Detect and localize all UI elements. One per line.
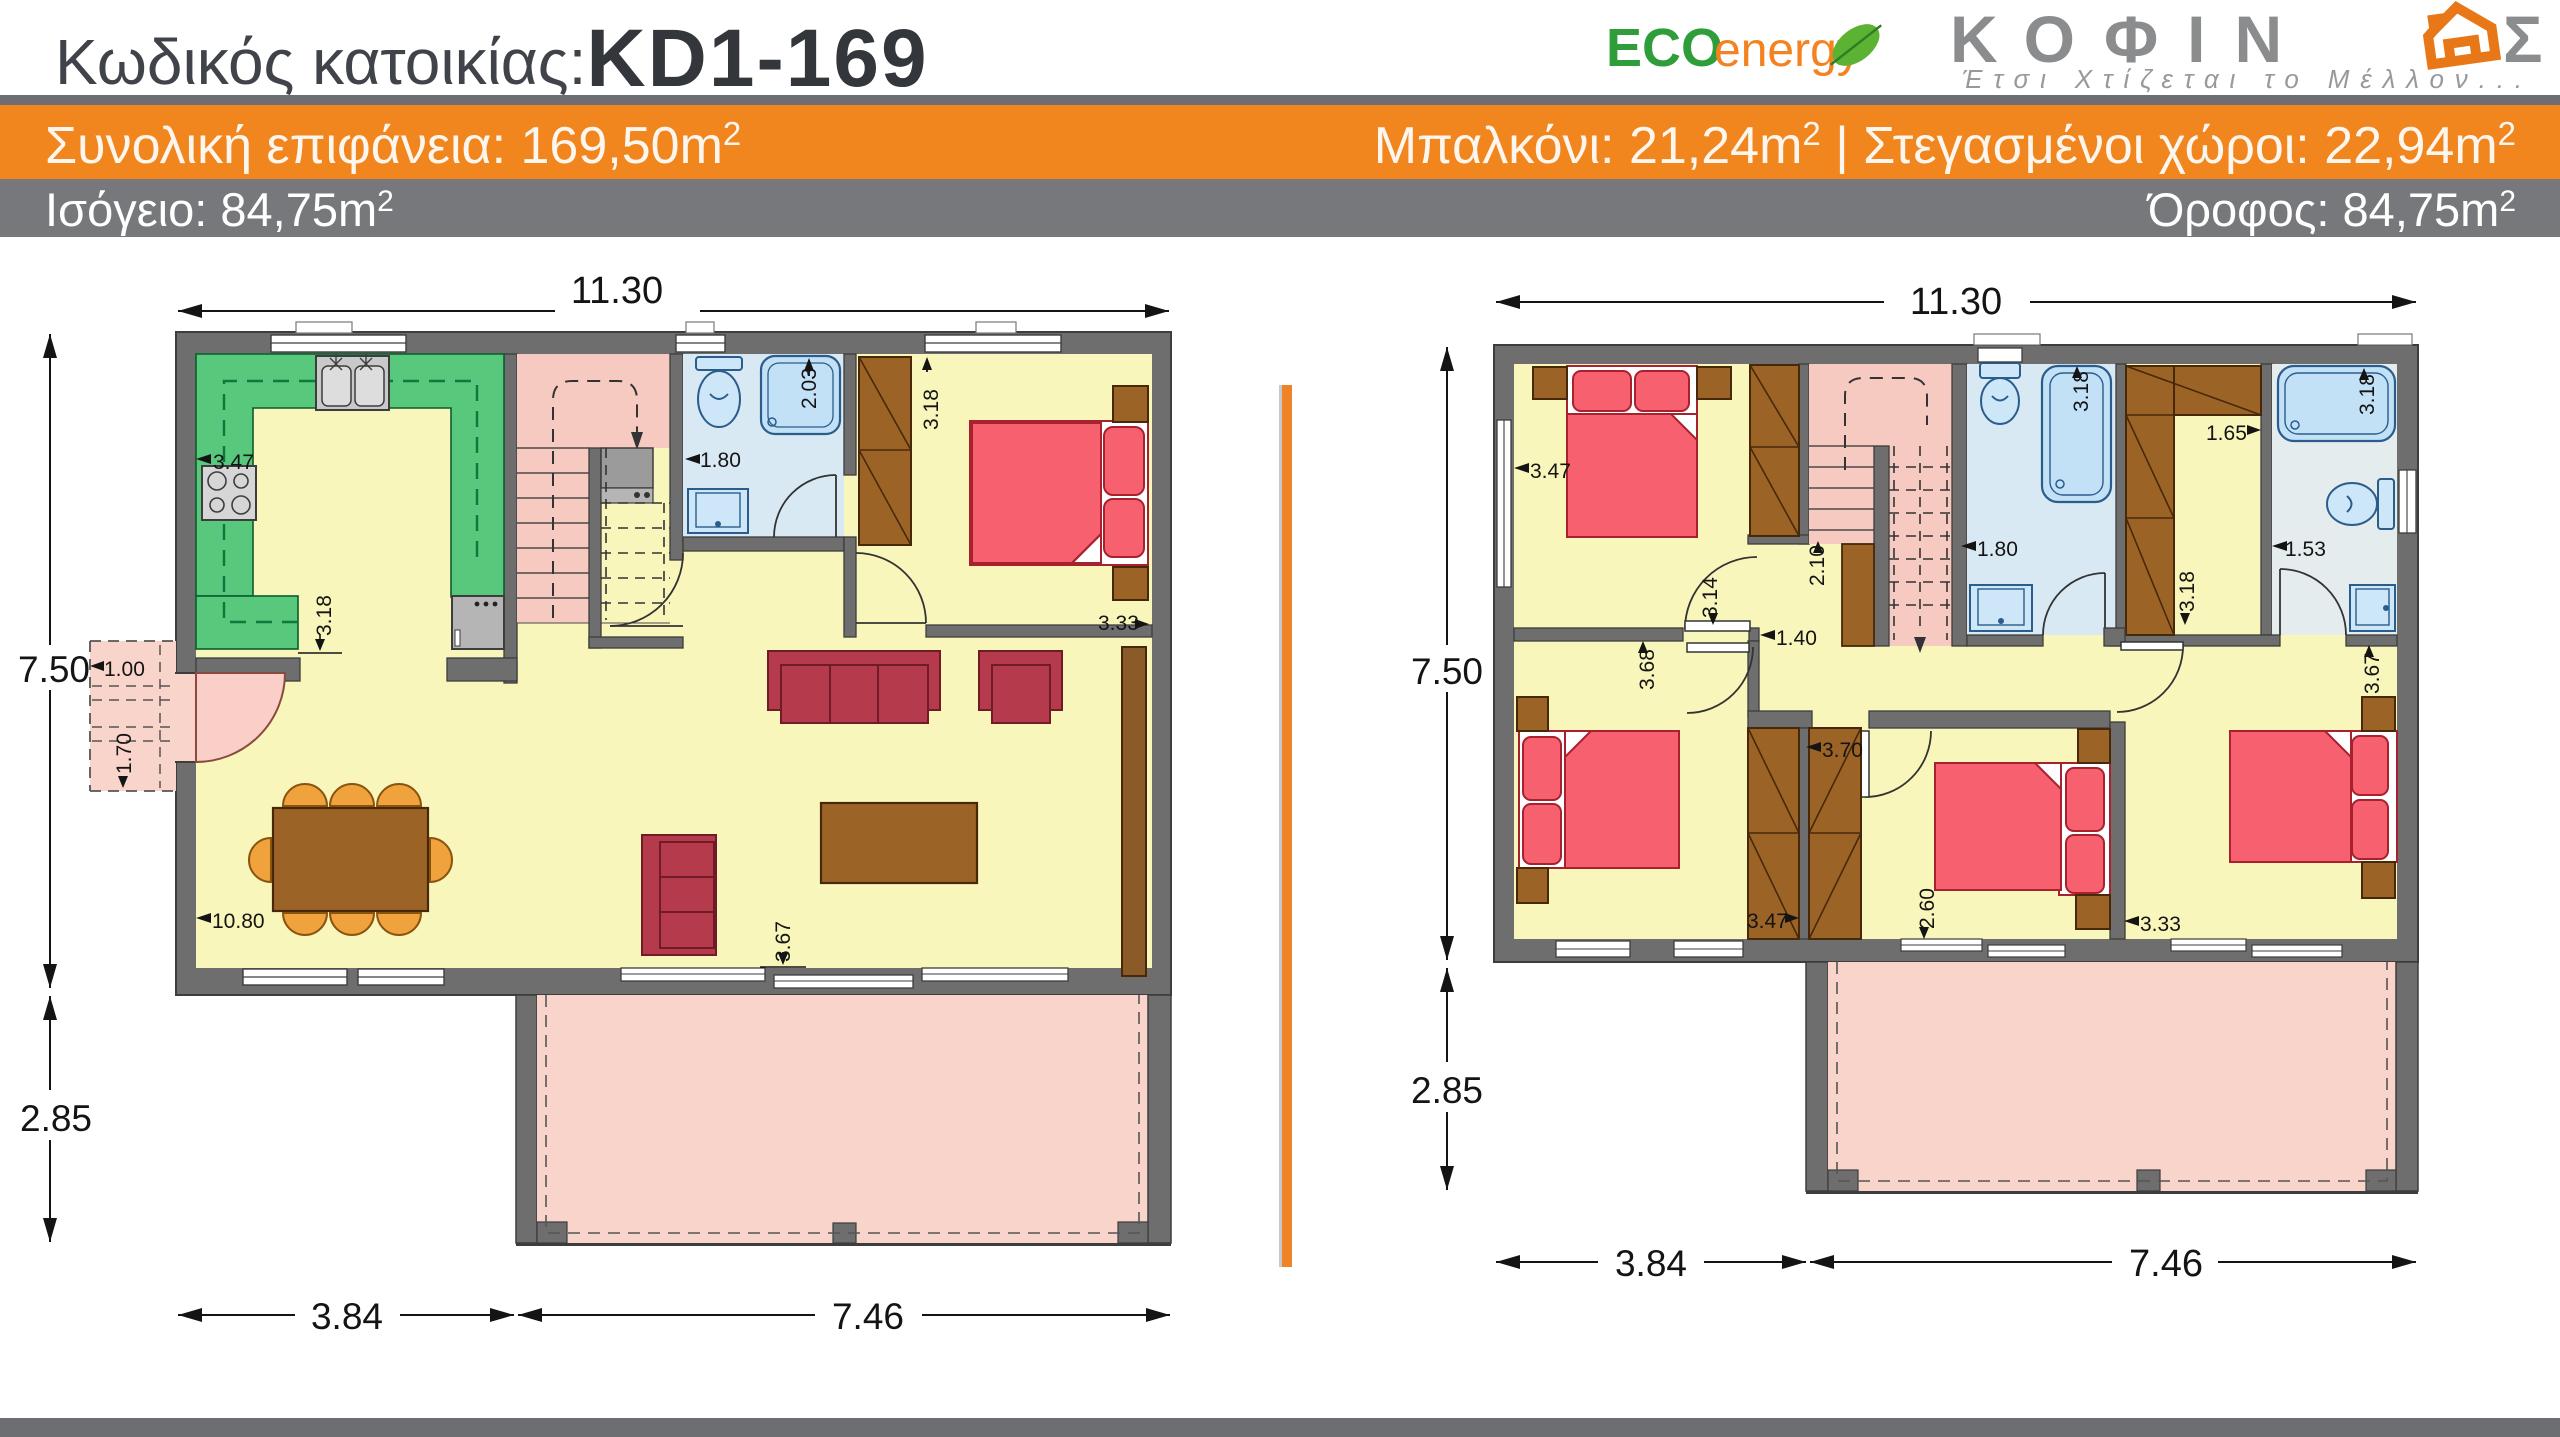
svg-text:3.70: 3.70 (1822, 739, 1863, 762)
svg-text:1.65: 1.65 (2206, 422, 2247, 445)
svg-text:1.53: 1.53 (2285, 538, 2326, 561)
svg-text:3.33: 3.33 (2140, 913, 2181, 936)
svg-text:7.46: 7.46 (832, 1296, 904, 1337)
svg-text:3.84: 3.84 (1615, 1243, 1687, 1284)
svg-text:3.18: 3.18 (2176, 571, 2199, 612)
svg-text:Μπαλκόνι: 21,24m2 | Στεγασμένο: Μπαλκόνι: 21,24m2 | Στεγασμένοι χώροι: 2… (1374, 115, 2516, 175)
svg-text:ECO: ECO (1606, 18, 1723, 78)
svg-text:1.40: 1.40 (1776, 627, 1817, 650)
svg-text:3.68: 3.68 (1636, 649, 1659, 690)
svg-text:2.85: 2.85 (1411, 1070, 1483, 1111)
svg-text:3.18: 3.18 (2356, 374, 2379, 415)
svg-text:1.70: 1.70 (113, 733, 136, 774)
svg-text:3.47: 3.47 (1747, 910, 1788, 933)
svg-text:7.50: 7.50 (18, 649, 90, 690)
svg-text:Σ: Σ (2503, 2, 2543, 76)
svg-text:3.84: 3.84 (311, 1296, 383, 1337)
svg-text:2.60: 2.60 (1916, 888, 1939, 929)
svg-text:3.47: 3.47 (213, 451, 254, 474)
svg-text:3.47: 3.47 (1530, 460, 1571, 483)
svg-text:3.18: 3.18 (313, 595, 336, 636)
svg-text:Συνολική επιφάνεια: 169,50m2: Συνολική επιφάνεια: 169,50m2 (45, 115, 741, 175)
svg-text:3.18: 3.18 (920, 389, 943, 430)
svg-text:3.33: 3.33 (1098, 612, 1139, 635)
svg-text:Κωδικός κατοικίας:KD1-169: Κωδικός κατοικίας:KD1-169 (55, 13, 929, 104)
svg-text:Ισόγειο: 84,75m2: Ισόγειο: 84,75m2 (45, 183, 394, 236)
svg-text:ΚΟΦΙΝ: ΚΟΦΙΝ (1950, 2, 2311, 76)
svg-text:7.50: 7.50 (1411, 651, 1483, 692)
svg-text:3.67: 3.67 (2361, 653, 2384, 694)
svg-text:11.30: 11.30 (1910, 281, 2002, 323)
svg-text:2.85: 2.85 (20, 1098, 92, 1139)
svg-text:1.80: 1.80 (1977, 538, 2018, 561)
svg-text:11.30: 11.30 (571, 270, 663, 312)
svg-text:1.80: 1.80 (700, 449, 741, 472)
svg-text:3.14: 3.14 (1699, 577, 1722, 618)
svg-text:Όροφος: 84,75m2: Όροφος: 84,75m2 (2146, 183, 2516, 236)
svg-text:1.00: 1.00 (104, 658, 145, 681)
svg-text:10.80: 10.80 (212, 910, 265, 933)
svg-text:7.46: 7.46 (2129, 1243, 2203, 1285)
